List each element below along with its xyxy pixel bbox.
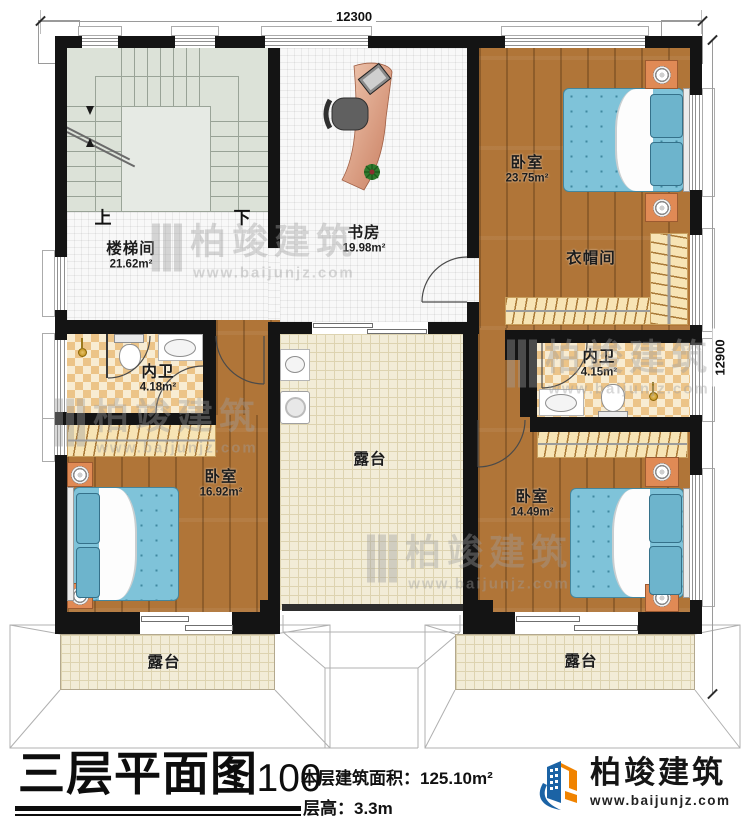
study-door-gap-floor	[467, 258, 479, 304]
dimension-right: 12900	[713, 329, 728, 387]
room-area: 21.62m²	[106, 258, 156, 271]
room-name: 书房	[343, 224, 386, 242]
label-terrace-left: 露台	[147, 654, 180, 672]
window	[55, 340, 67, 412]
pillow	[650, 94, 683, 138]
title-underline	[15, 806, 301, 811]
wardrobe	[67, 424, 216, 457]
sliding-door-panel	[185, 625, 233, 631]
floor-area-text: 本层建筑面积：125.10m²	[301, 764, 493, 789]
sliding-door-panel	[141, 616, 189, 622]
room-name: 内卫	[140, 363, 176, 381]
nightstand	[645, 193, 678, 222]
shower-head-icon	[649, 392, 658, 401]
room-name: 卧室	[200, 468, 243, 486]
terrace-parapet	[282, 604, 463, 611]
room-name: 卧室	[511, 488, 554, 506]
bath-partition	[106, 334, 108, 378]
dimension-top: 12300	[332, 9, 376, 24]
sink	[545, 394, 577, 412]
window	[55, 257, 67, 310]
wall	[268, 322, 280, 634]
room-area: 14.49m²	[511, 506, 554, 519]
wall	[55, 36, 67, 634]
chair-back-icon	[326, 100, 330, 128]
label-bedroom-right: 卧室14.49m²	[511, 488, 554, 519]
toilet-tank	[114, 334, 144, 343]
window-sill	[702, 88, 715, 197]
logo-url: www.baijunjz.com	[590, 793, 731, 808]
wardrobe	[650, 233, 688, 325]
label-bedroom-master: 卧室23.75m²	[506, 154, 549, 185]
plant-icon	[364, 164, 380, 180]
wall	[520, 343, 537, 417]
duvet	[612, 489, 650, 597]
pillow	[649, 546, 682, 595]
window-sill	[702, 228, 715, 332]
room-name: 楼梯间	[106, 240, 156, 258]
stair-hall-floor	[67, 212, 268, 322]
stair-arrow-icon	[86, 106, 94, 115]
window-sill	[171, 26, 219, 36]
pillow	[76, 547, 100, 598]
toilet	[601, 384, 625, 412]
pillow	[76, 493, 100, 544]
wall	[467, 36, 479, 258]
pillow	[650, 142, 683, 186]
stair-up-label: 上	[95, 204, 112, 229]
stair-arrow-icon	[86, 138, 94, 147]
label-bath-left: 内卫4.18m²	[140, 363, 176, 394]
sliding-door-panel	[367, 329, 427, 334]
page-title: 三层平面图	[18, 748, 258, 800]
wall	[463, 600, 493, 616]
window-sill	[702, 468, 715, 607]
window-sill	[42, 333, 55, 419]
room-area: 23.75m²	[506, 172, 549, 185]
room-name: 卧室	[506, 154, 549, 172]
floor-height-text: 层高：3.3m	[303, 794, 393, 819]
stair-down-label: 下	[234, 204, 251, 229]
window-sill	[261, 26, 372, 36]
wall	[268, 36, 280, 248]
chair	[332, 98, 368, 130]
wardrobe	[505, 297, 651, 325]
window	[505, 36, 645, 48]
logo-name: 柏竣建筑	[590, 757, 731, 788]
label-terrace-right: 露台	[564, 653, 597, 671]
window	[690, 235, 702, 325]
window	[690, 95, 702, 190]
shower-head-icon	[78, 348, 87, 357]
room-name: 露台	[353, 451, 386, 469]
washbasin	[285, 356, 305, 373]
window	[265, 36, 368, 48]
window-sill	[42, 250, 55, 317]
window	[690, 345, 702, 415]
duvet	[99, 488, 137, 600]
nightstand	[645, 60, 678, 89]
label-bath-right: 内卫4.15m²	[581, 348, 617, 379]
room-area: 4.18m²	[140, 381, 176, 394]
wall	[467, 302, 479, 334]
label-bedroom-left: 卧室16.92m²	[200, 468, 243, 499]
label-stairwell: 楼梯间21.62m²	[106, 240, 156, 271]
floor-plan-canvas: 楼梯间21.62m²书房19.98m²卧室23.75m²衣帽间内卫4.18m²内…	[0, 0, 750, 827]
window-sill	[42, 418, 55, 462]
wall	[55, 413, 216, 425]
window-sill	[78, 26, 122, 36]
nightstand	[645, 457, 679, 487]
wall	[505, 330, 520, 360]
headboard	[683, 488, 690, 598]
stair-path-outline	[95, 76, 239, 212]
sliding-door-panel	[516, 616, 580, 622]
room-area: 4.15m²	[581, 366, 617, 379]
wall	[260, 600, 278, 616]
wall	[463, 334, 478, 617]
headboard	[67, 487, 74, 601]
washing-machine	[280, 391, 310, 424]
headboard	[683, 88, 690, 192]
window	[82, 36, 118, 48]
title-underline-thin	[15, 814, 301, 816]
shower-stem	[652, 382, 654, 393]
window	[690, 475, 702, 600]
window-sill	[501, 26, 649, 36]
sliding-door-panel	[574, 625, 638, 631]
sink	[164, 339, 196, 357]
label-terrace-middle: 露台	[353, 451, 386, 469]
label-study: 书房19.98m²	[343, 224, 386, 255]
room-area: 19.98m²	[343, 242, 386, 255]
logo-building-icon	[534, 757, 582, 811]
duvet	[615, 89, 653, 191]
company-logo: 柏竣建筑 www.baijunjz.com	[534, 757, 731, 811]
room-name: 内卫	[581, 348, 617, 366]
wall	[55, 320, 216, 334]
desk-group	[318, 58, 418, 198]
sliding-door-panel	[313, 323, 373, 328]
wall	[530, 417, 690, 432]
window	[175, 36, 215, 48]
hall-gap-floor	[268, 248, 280, 322]
wall	[203, 320, 216, 425]
room-area: 16.92m²	[200, 486, 243, 499]
room-name: 露台	[147, 654, 180, 672]
room-name: 露台	[564, 653, 597, 671]
label-cloakroom: 衣帽间	[566, 250, 616, 268]
toilet	[119, 344, 141, 370]
wall	[505, 330, 702, 343]
pillow	[649, 494, 682, 543]
wardrobe	[537, 430, 688, 458]
room-name: 衣帽间	[566, 250, 616, 268]
window	[55, 425, 67, 455]
shower-stem	[81, 338, 83, 349]
nightstand	[67, 462, 93, 487]
